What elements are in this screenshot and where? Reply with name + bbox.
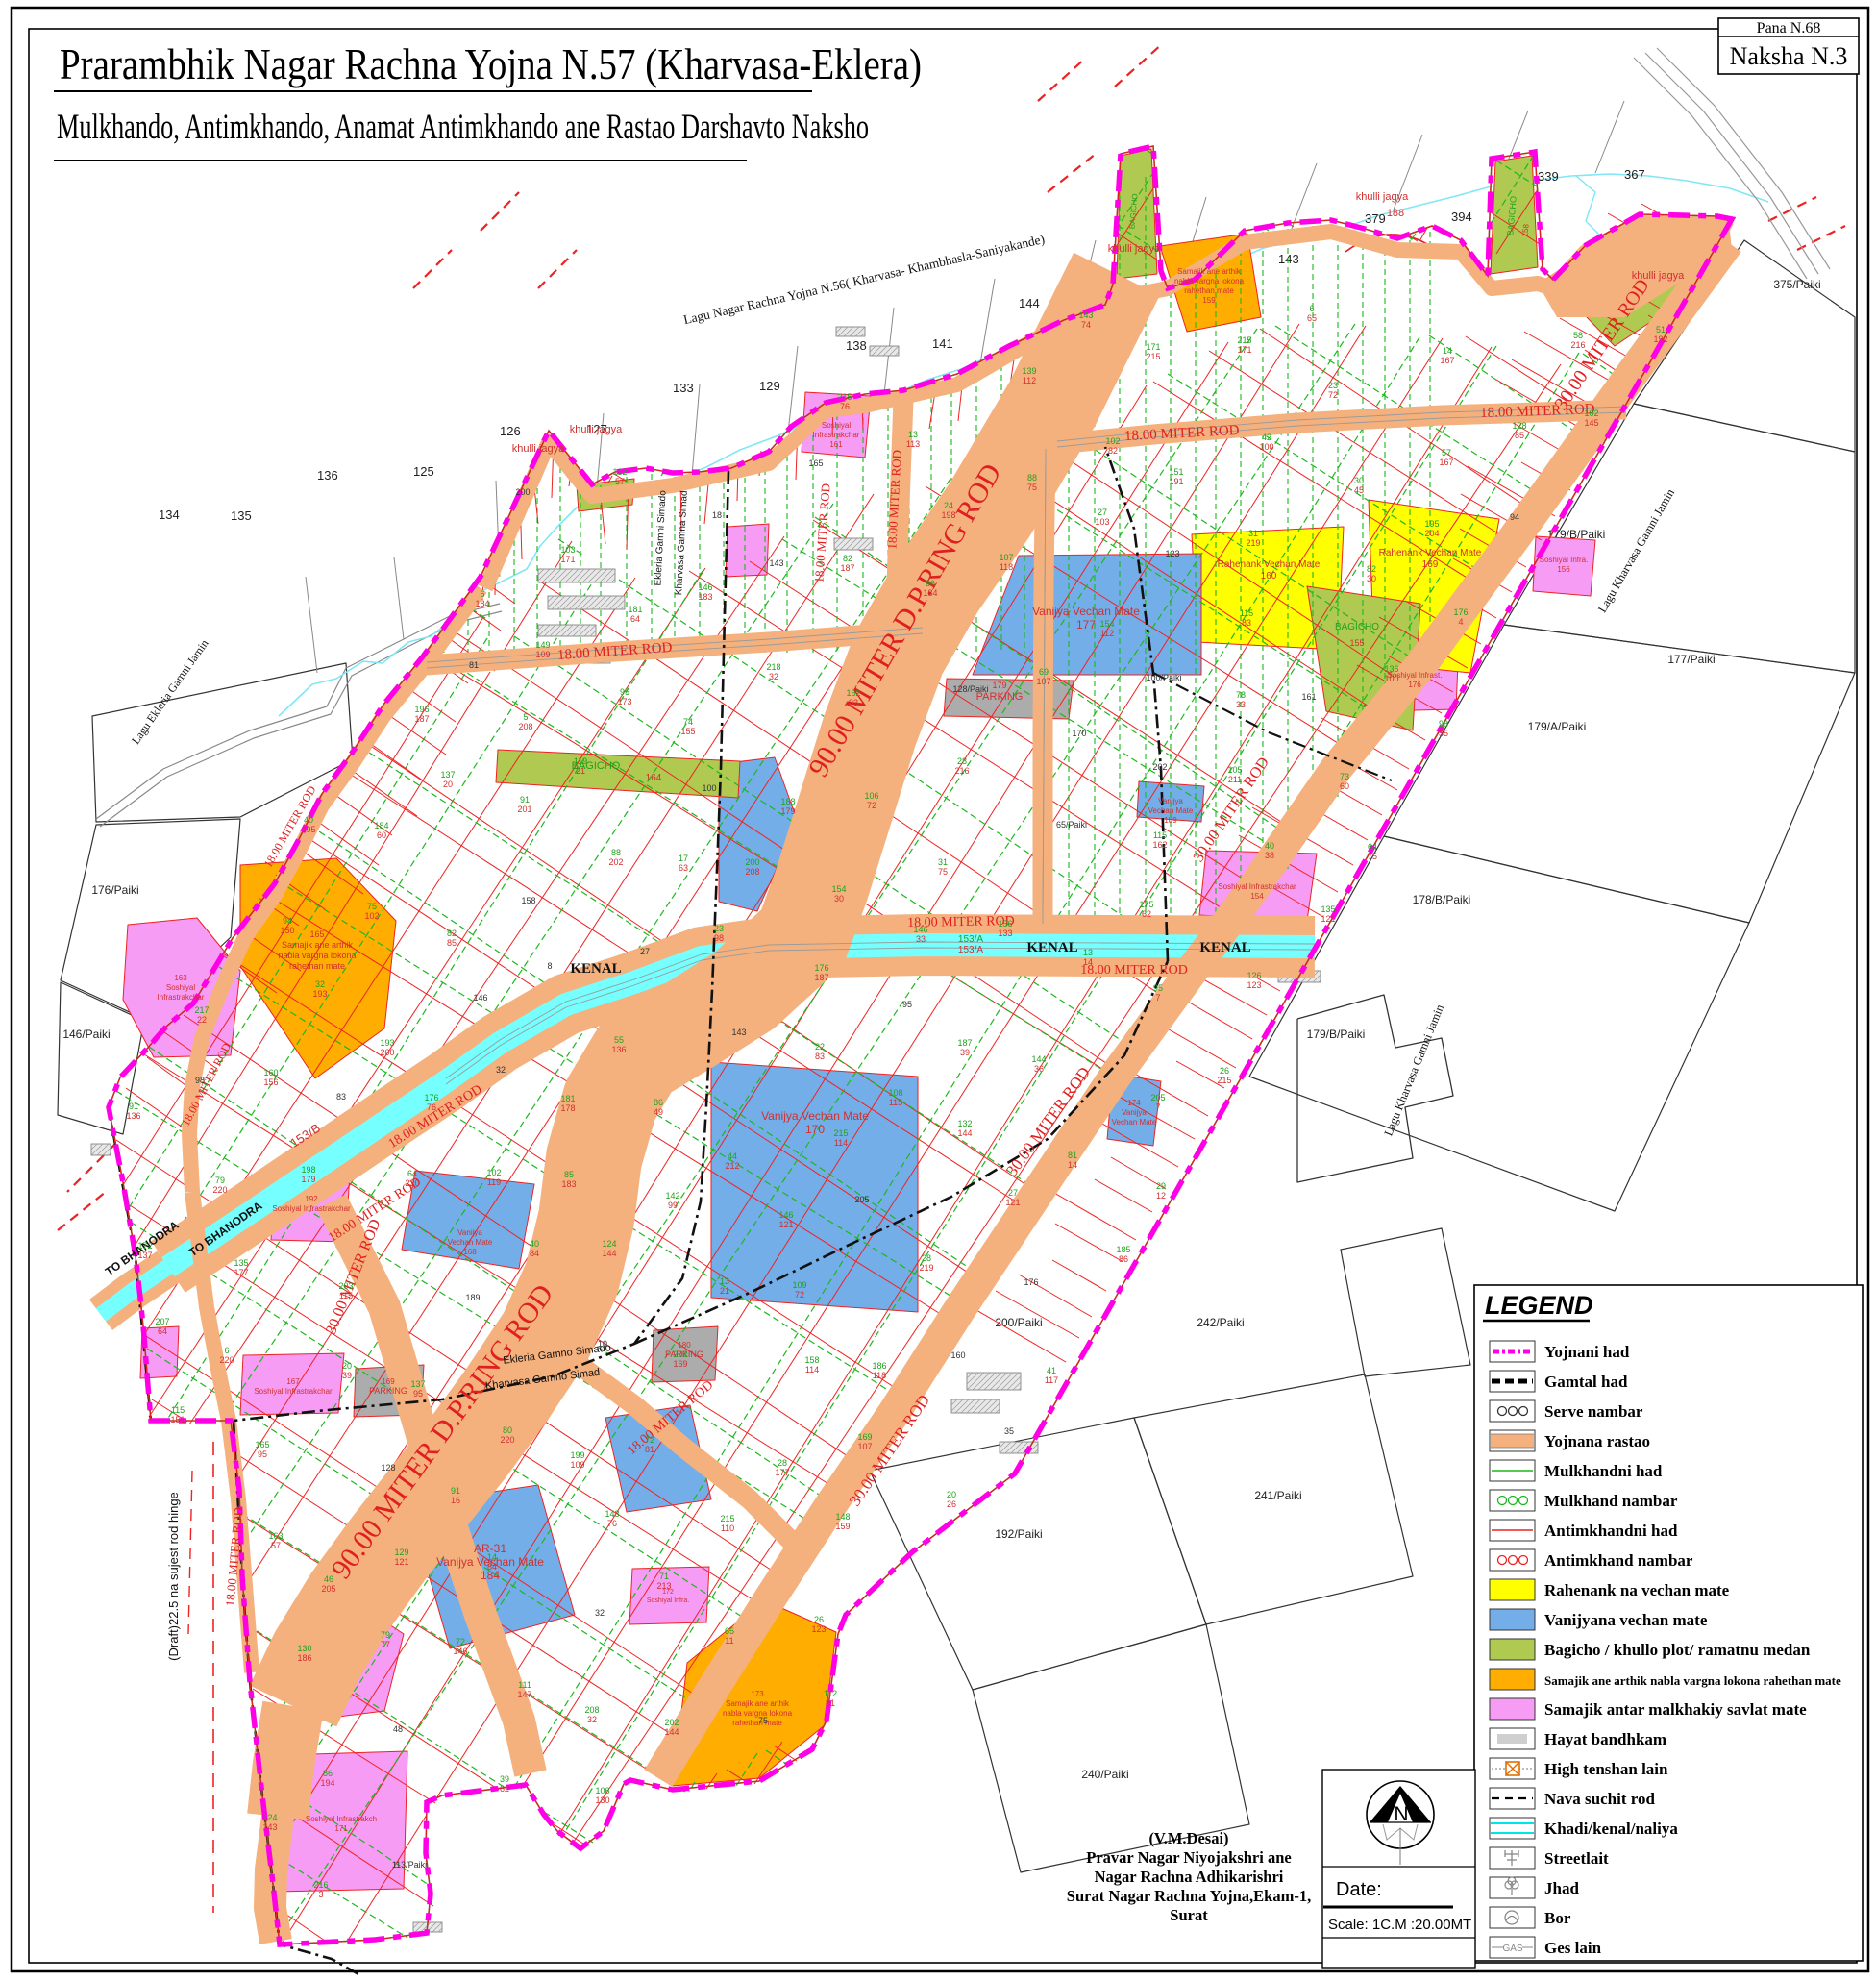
svg-text:153/A: 153/A: [958, 945, 983, 955]
svg-text:215: 215: [720, 1514, 734, 1523]
svg-text:156: 156: [263, 1077, 278, 1087]
svg-text:212: 212: [725, 1161, 739, 1171]
svg-text:Soshiyal Infrastrakch: Soshiyal Infrastrakch: [306, 1815, 377, 1823]
svg-text:154: 154: [831, 884, 846, 894]
svg-text:Serve nambar: Serve nambar: [1544, 1402, 1643, 1421]
svg-text:95: 95: [413, 1389, 423, 1399]
svg-text:153/A: 153/A: [958, 934, 983, 945]
svg-text:219: 219: [1246, 538, 1260, 548]
svg-text:Soshiyal: Soshiyal: [822, 421, 851, 430]
svg-text:198: 198: [301, 1165, 315, 1175]
svg-text:188: 188: [1387, 208, 1404, 219]
svg-text:160: 160: [263, 1068, 278, 1077]
svg-text:195: 195: [301, 825, 315, 834]
svg-text:105: 105: [1227, 765, 1242, 775]
svg-text:176: 176: [424, 1093, 438, 1102]
svg-text:Samajik antar malkhakiy savlat: Samajik antar malkhakiy savlat mate: [1544, 1700, 1807, 1719]
svg-text:62: 62: [1142, 909, 1151, 919]
svg-text:Vechan Mate: Vechan Mate: [1112, 1118, 1157, 1127]
svg-text:106: 106: [864, 791, 878, 801]
svg-text:192/Paiki: 192/Paiki: [995, 1527, 1042, 1541]
svg-text:123: 123: [1247, 980, 1261, 990]
svg-text:77: 77: [381, 1640, 390, 1649]
svg-text:100/Paiki: 100/Paiki: [1146, 673, 1181, 682]
svg-text:179: 179: [780, 806, 795, 816]
svg-text:208: 208: [745, 867, 759, 877]
svg-text:118: 118: [1000, 562, 1013, 572]
svg-text:191: 191: [1169, 477, 1183, 486]
svg-text:82: 82: [843, 554, 852, 563]
svg-text:205: 205: [1150, 1093, 1165, 1102]
svg-text:4: 4: [1458, 617, 1463, 627]
svg-text:39: 39: [342, 1371, 352, 1380]
svg-text:32: 32: [496, 1065, 506, 1075]
svg-text:41: 41: [1047, 1366, 1056, 1375]
svg-text:109: 109: [570, 1460, 584, 1470]
svg-text:72: 72: [795, 1290, 804, 1300]
svg-text:114: 114: [805, 1365, 819, 1374]
svg-text:171: 171: [560, 555, 575, 564]
svg-text:Gamtal had: Gamtal had: [1544, 1373, 1628, 1391]
svg-text:196: 196: [414, 705, 429, 714]
svg-text:165: 165: [309, 929, 324, 939]
svg-text:76: 76: [427, 1102, 436, 1112]
svg-text:69: 69: [1039, 667, 1049, 677]
svg-text:143: 143: [262, 1822, 277, 1832]
svg-text:81: 81: [1068, 1151, 1077, 1160]
svg-text:31: 31: [938, 857, 948, 867]
svg-text:132: 132: [957, 1119, 972, 1128]
svg-text:110: 110: [721, 1523, 734, 1533]
svg-text:6: 6: [1309, 304, 1314, 313]
svg-text:126: 126: [500, 424, 521, 438]
svg-text:20: 20: [342, 1361, 352, 1371]
svg-text:Infrastrakchar: Infrastrakchar: [158, 993, 205, 1002]
svg-text:BAGICHO: BAGICHO: [1335, 622, 1379, 632]
svg-text:181: 181: [560, 1094, 575, 1103]
svg-text:80: 80: [503, 1425, 512, 1435]
svg-text:21: 21: [576, 766, 585, 776]
svg-text:KENAL: KENAL: [1026, 940, 1077, 955]
svg-text:129: 129: [394, 1548, 408, 1557]
svg-text:7: 7: [1155, 993, 1160, 1003]
svg-text:146/Paiki: 146/Paiki: [62, 1028, 110, 1041]
svg-text:18.00 MITER ROD: 18.00 MITER ROD: [1080, 963, 1188, 978]
svg-text:21: 21: [720, 1286, 729, 1296]
svg-text:(V.M.Desai): (V.M.Desai): [1148, 1829, 1228, 1847]
svg-text:66: 66: [926, 579, 935, 588]
svg-text:109: 109: [535, 650, 550, 659]
svg-text:143: 143: [1278, 252, 1299, 266]
svg-text:173: 173: [617, 697, 631, 706]
svg-text:83: 83: [1242, 618, 1251, 628]
svg-text:75: 75: [758, 1716, 768, 1725]
svg-text:81: 81: [826, 1698, 835, 1708]
svg-text:88: 88: [1027, 473, 1037, 483]
svg-text:143: 143: [1078, 310, 1093, 320]
svg-text:186: 186: [297, 1653, 311, 1663]
svg-text:155: 155: [680, 727, 695, 736]
svg-text:151: 151: [170, 1415, 185, 1424]
svg-text:75: 75: [938, 867, 948, 877]
svg-text:187: 187: [414, 714, 429, 724]
svg-text:177: 177: [775, 1468, 789, 1477]
svg-text:Vanijya Vechan Mate: Vanijya Vechan Mate: [1032, 605, 1140, 618]
svg-text:215: 215: [1217, 1076, 1231, 1085]
svg-text:39: 39: [500, 1774, 509, 1784]
svg-text:32: 32: [315, 979, 325, 989]
svg-text:130: 130: [595, 1795, 609, 1805]
svg-text:18: 18: [712, 510, 722, 520]
svg-text:86: 86: [323, 1769, 333, 1778]
svg-text:144: 144: [664, 1727, 679, 1737]
svg-text:24: 24: [944, 501, 953, 510]
svg-text:220: 220: [212, 1185, 227, 1195]
svg-text:167: 167: [1439, 458, 1453, 467]
svg-text:85: 85: [447, 938, 457, 948]
svg-text:Vanijyana vechan mate: Vanijyana vechan mate: [1544, 1611, 1708, 1629]
svg-text:32: 32: [769, 672, 778, 681]
svg-text:135: 135: [234, 1258, 248, 1268]
svg-text:119: 119: [487, 1177, 501, 1187]
svg-text:81: 81: [645, 1445, 654, 1454]
svg-text:146: 146: [453, 1647, 467, 1656]
svg-text:Mulkhand nambar: Mulkhand nambar: [1544, 1492, 1678, 1510]
svg-text:6: 6: [480, 589, 484, 599]
svg-text:Rahenank na vechan mate: Rahenank na vechan mate: [1544, 1581, 1730, 1599]
svg-text:Naksha N.3: Naksha N.3: [1730, 42, 1848, 70]
svg-text:44: 44: [728, 1151, 737, 1161]
svg-text:218: 218: [766, 662, 780, 672]
svg-text:Samajik ane arthik nabla vargn: Samajik ane arthik nabla vargna lokona r…: [1544, 1673, 1841, 1688]
svg-text:71: 71: [659, 1572, 669, 1581]
svg-text:95: 95: [258, 1449, 267, 1459]
svg-text:13: 13: [720, 1276, 729, 1286]
svg-text:124: 124: [602, 1239, 616, 1249]
svg-text:107: 107: [857, 1442, 872, 1451]
svg-text:186: 186: [872, 1361, 886, 1371]
svg-text:45: 45: [1354, 485, 1364, 495]
svg-text:14: 14: [487, 1552, 497, 1562]
svg-text:200: 200: [745, 857, 759, 867]
svg-text:202: 202: [673, 1350, 687, 1359]
svg-text:178: 178: [560, 1103, 575, 1113]
svg-text:102: 102: [1105, 436, 1120, 446]
svg-text:193: 193: [312, 989, 327, 999]
svg-text:Ges lain: Ges lain: [1544, 1939, 1602, 1957]
svg-text:58: 58: [1573, 331, 1583, 340]
svg-text:144: 144: [957, 1128, 972, 1138]
svg-text:137: 137: [137, 1251, 152, 1260]
svg-text:106: 106: [595, 1786, 609, 1795]
svg-text:95: 95: [1153, 983, 1163, 993]
svg-text:133: 133: [998, 929, 1012, 938]
svg-text:136: 136: [1384, 664, 1398, 674]
svg-text:149: 149: [535, 640, 550, 650]
svg-text:143: 143: [769, 558, 783, 568]
svg-text:141: 141: [932, 336, 953, 351]
svg-text:171: 171: [334, 1824, 348, 1833]
svg-text:Yojnani had: Yojnani had: [1544, 1343, 1630, 1361]
svg-text:123: 123: [1165, 549, 1179, 558]
svg-text:111: 111: [518, 1680, 531, 1690]
svg-text:Khadi/kenal/naliya: Khadi/kenal/naliya: [1544, 1820, 1678, 1838]
svg-text:60: 60: [1340, 781, 1349, 791]
svg-text:115: 115: [889, 1098, 902, 1107]
svg-text:151: 151: [1169, 467, 1183, 477]
svg-text:117: 117: [1045, 1375, 1058, 1385]
svg-text:136: 136: [611, 1045, 626, 1054]
svg-text:Samajik ane arthik: Samajik ane arthik: [726, 1699, 790, 1708]
svg-text:200/Paiki: 200/Paiki: [995, 1316, 1042, 1329]
svg-text:242/Paiki: 242/Paiki: [1197, 1316, 1244, 1329]
svg-text:144: 144: [602, 1249, 616, 1258]
svg-text:161: 161: [829, 440, 843, 449]
svg-text:49: 49: [654, 1107, 663, 1117]
svg-text:172: 172: [137, 1241, 152, 1251]
svg-text:31: 31: [1248, 529, 1258, 538]
svg-text:26: 26: [947, 1499, 956, 1509]
svg-text:156: 156: [998, 919, 1012, 929]
svg-text:241/Paiki: 241/Paiki: [1254, 1489, 1301, 1502]
svg-text:216: 216: [954, 766, 969, 776]
svg-text:20: 20: [947, 1490, 956, 1499]
svg-text:32: 32: [587, 1715, 597, 1724]
svg-text:73: 73: [1340, 772, 1349, 781]
svg-text:Surat Nagar Rachna Yojna,Ekam-: Surat Nagar Rachna Yojna,Ekam-1,: [1067, 1887, 1311, 1905]
svg-text:215: 215: [1237, 335, 1251, 345]
svg-text:220: 220: [219, 1355, 234, 1365]
svg-text:57: 57: [615, 477, 625, 486]
svg-text:170: 170: [805, 1123, 825, 1136]
svg-text:195: 195: [1424, 519, 1439, 529]
svg-text:28: 28: [778, 1458, 787, 1468]
svg-text:64: 64: [407, 1169, 417, 1178]
svg-text:107: 107: [1036, 677, 1050, 686]
svg-text:Nava suchit rod: Nava suchit rod: [1544, 1790, 1655, 1808]
svg-text:10: 10: [598, 1339, 607, 1349]
svg-text:23: 23: [714, 924, 724, 933]
svg-text:137: 137: [410, 1379, 425, 1389]
svg-text:42: 42: [1262, 433, 1271, 442]
svg-text:Samajik ane arthik: Samajik ane arthik: [1177, 267, 1242, 276]
svg-text:60: 60: [377, 830, 386, 840]
svg-text:(Draft)22.5 na sujest rod hing: (Draft)22.5 na sujest rod hinge: [166, 1492, 181, 1661]
svg-text:112: 112: [1100, 629, 1114, 638]
svg-text:100: 100: [1259, 442, 1273, 452]
svg-text:189: 189: [1164, 816, 1177, 825]
svg-text:22: 22: [197, 1015, 207, 1025]
svg-text:102: 102: [364, 911, 379, 921]
svg-text:146: 146: [778, 1210, 793, 1220]
svg-text:189: 189: [465, 1293, 480, 1302]
svg-text:40: 40: [530, 1239, 539, 1249]
svg-text:95: 95: [620, 687, 629, 697]
svg-text:121: 121: [394, 1557, 408, 1567]
svg-text:144: 144: [1031, 1054, 1046, 1064]
svg-text:LEGEND: LEGEND: [1485, 1291, 1593, 1320]
svg-text:213: 213: [656, 1581, 671, 1591]
svg-text:168: 168: [463, 1248, 477, 1256]
svg-text:220: 220: [405, 1178, 419, 1188]
svg-text:GAS: GAS: [1502, 1944, 1522, 1954]
svg-text:Vanijya: Vanijya: [457, 1228, 482, 1237]
svg-text:5: 5: [523, 712, 528, 722]
svg-text:169: 169: [673, 1359, 687, 1369]
svg-text:Soshiyal Infrastrakchar: Soshiyal Infrastrakchar: [272, 1204, 351, 1213]
svg-text:28: 28: [922, 1253, 931, 1263]
svg-text:174: 174: [1127, 1099, 1141, 1107]
svg-text:7: 7: [1155, 1102, 1160, 1112]
svg-text:128: 128: [1512, 421, 1526, 431]
svg-text:64: 64: [1368, 842, 1377, 852]
svg-text:Soshiyal Infra.: Soshiyal Infra.: [1540, 556, 1589, 564]
svg-text:28: 28: [957, 756, 967, 766]
svg-text:Infrastrakchar: Infrastrakchar: [813, 431, 860, 439]
svg-text:202: 202: [1152, 762, 1167, 772]
svg-text:Samajik ane arthik: Samajik ane arthik: [282, 940, 354, 950]
svg-text:121: 121: [1321, 914, 1335, 924]
svg-text:194: 194: [320, 1778, 334, 1788]
svg-text:112: 112: [1023, 376, 1036, 385]
svg-text:94: 94: [283, 916, 292, 926]
svg-text:103: 103: [1095, 517, 1109, 527]
svg-text:Vanijya: Vanijya: [1158, 797, 1183, 805]
svg-text:115: 115: [1153, 830, 1167, 840]
svg-text:65: 65: [1307, 313, 1317, 323]
svg-text:30: 30: [1367, 574, 1376, 583]
svg-text:109: 109: [792, 1280, 806, 1290]
svg-text:91: 91: [129, 1102, 138, 1111]
svg-text:113/Paiki: 113/Paiki: [392, 1860, 427, 1870]
svg-text:3: 3: [318, 1890, 323, 1899]
svg-text:176/Paiki: 176/Paiki: [91, 883, 138, 897]
svg-text:128/Paiki: 128/Paiki: [952, 684, 988, 694]
svg-text:khulli jagya: khulli jagya: [1356, 191, 1409, 203]
svg-text:khulli jagya: khulli jagya: [1108, 243, 1161, 255]
svg-text:91: 91: [451, 1486, 460, 1496]
svg-text:16: 16: [451, 1496, 460, 1505]
svg-text:178/B/Paiki: 178/B/Paiki: [1413, 893, 1471, 906]
svg-text:163: 163: [174, 974, 187, 982]
svg-text:76: 76: [607, 1519, 617, 1528]
svg-text:161: 161: [1301, 692, 1316, 702]
svg-text:132: 132: [612, 467, 627, 477]
svg-text:202: 202: [664, 1718, 679, 1727]
svg-text:154: 154: [1099, 619, 1114, 629]
svg-text:39: 39: [960, 1048, 970, 1057]
svg-text:79: 79: [381, 1630, 390, 1640]
svg-text:165: 165: [808, 458, 823, 468]
svg-text:179/B/Paiki: 179/B/Paiki: [1307, 1028, 1366, 1041]
svg-text:Pravar Nagar Niyojakshri ane: Pravar Nagar Niyojakshri ane: [1086, 1848, 1291, 1867]
svg-text:29: 29: [1156, 1181, 1166, 1191]
svg-text:112: 112: [824, 1689, 837, 1698]
svg-text:48: 48: [393, 1724, 403, 1734]
svg-text:200: 200: [515, 487, 530, 497]
svg-text:nabla vargna lokona: nabla vargna lokona: [278, 951, 356, 960]
svg-text:94: 94: [1510, 512, 1519, 522]
svg-text:170: 170: [1072, 729, 1086, 738]
svg-text:177: 177: [234, 1268, 248, 1277]
svg-text:64: 64: [630, 614, 640, 624]
svg-text:75: 75: [367, 902, 377, 911]
svg-text:26: 26: [814, 1615, 824, 1624]
svg-text:177: 177: [1076, 618, 1096, 631]
svg-text:147: 147: [517, 1690, 531, 1699]
svg-text:136: 136: [126, 1111, 140, 1121]
svg-text:118: 118: [873, 1371, 886, 1380]
svg-text:Antimkhandni had: Antimkhandni had: [1544, 1522, 1678, 1540]
svg-text:160: 160: [1261, 571, 1277, 582]
svg-text:79: 79: [215, 1176, 225, 1185]
svg-text:85: 85: [564, 1170, 574, 1179]
svg-text:145: 145: [1584, 418, 1598, 428]
svg-text:11: 11: [725, 1636, 733, 1646]
svg-text:57: 57: [271, 1541, 281, 1550]
svg-text:Prarambhik Nagar Rachna Yojna: Prarambhik Nagar Rachna Yojna N.57 (Khar…: [60, 39, 922, 88]
svg-text:137: 137: [440, 770, 455, 780]
svg-text:115: 115: [339, 1291, 353, 1300]
svg-text:146: 146: [473, 993, 487, 1003]
svg-text:65/Paiki: 65/Paiki: [1056, 820, 1087, 830]
svg-text:Mulkhandni had: Mulkhandni had: [1544, 1462, 1663, 1480]
svg-text:150: 150: [280, 926, 294, 935]
svg-text:81: 81: [469, 660, 479, 670]
svg-text:Mulkhando, Antimkhando, Anamat: Mulkhando, Antimkhando, Anamat Antimkhan…: [57, 108, 869, 147]
svg-text:75: 75: [1368, 852, 1377, 861]
svg-text:154: 154: [1250, 892, 1264, 901]
svg-text:74: 74: [1081, 320, 1091, 330]
svg-text:211: 211: [1228, 775, 1242, 784]
svg-text:216: 216: [313, 1880, 328, 1890]
svg-text:63: 63: [679, 863, 688, 873]
svg-text:Scale: 1C.M :20.00MT: Scale: 1C.M :20.00MT: [1328, 1917, 1471, 1933]
svg-text:Vanijya Vechan Mate: Vanijya Vechan Mate: [761, 1109, 869, 1123]
svg-text:khulli jagya: khulli jagya: [1632, 270, 1685, 282]
svg-text:76: 76: [840, 402, 850, 411]
svg-text:62: 62: [500, 1784, 509, 1794]
svg-text:165: 165: [255, 1440, 269, 1449]
svg-text:98: 98: [195, 1076, 205, 1085]
svg-text:72: 72: [1328, 390, 1338, 400]
svg-text:200: 200: [380, 1048, 394, 1057]
svg-text:220: 220: [500, 1435, 514, 1445]
svg-text:158: 158: [521, 896, 535, 905]
svg-text:93: 93: [849, 698, 858, 707]
svg-text:184: 184: [475, 599, 489, 608]
svg-text:183: 183: [698, 592, 712, 602]
svg-text:179: 179: [301, 1175, 315, 1184]
svg-text:187: 187: [814, 973, 828, 982]
svg-text:Bor: Bor: [1544, 1909, 1571, 1927]
svg-text:177/Paiki: 177/Paiki: [1667, 653, 1715, 666]
svg-text:27: 27: [1098, 508, 1107, 517]
svg-text:143: 143: [731, 1028, 746, 1037]
svg-text:192: 192: [305, 1195, 318, 1203]
svg-text:Bagicho / khullo plot/ ramatnu: Bagicho / khullo plot/ ramatnu medan: [1544, 1641, 1811, 1659]
svg-text:204: 204: [1424, 529, 1439, 538]
svg-text:159: 159: [1202, 296, 1216, 305]
svg-text:High tenshan lain: High tenshan lain: [1544, 1760, 1668, 1778]
svg-text:75: 75: [1027, 483, 1037, 492]
svg-text:Rahenank Vechan Mate: Rahenank Vechan Mate: [1218, 559, 1321, 570]
svg-text:12: 12: [1156, 1191, 1166, 1201]
svg-text:Nagar Rachna Adhikarishri: Nagar Rachna Adhikarishri: [1095, 1868, 1284, 1886]
svg-text:14: 14: [1443, 346, 1452, 356]
svg-text:33: 33: [1236, 700, 1246, 709]
svg-text:130: 130: [297, 1644, 311, 1653]
